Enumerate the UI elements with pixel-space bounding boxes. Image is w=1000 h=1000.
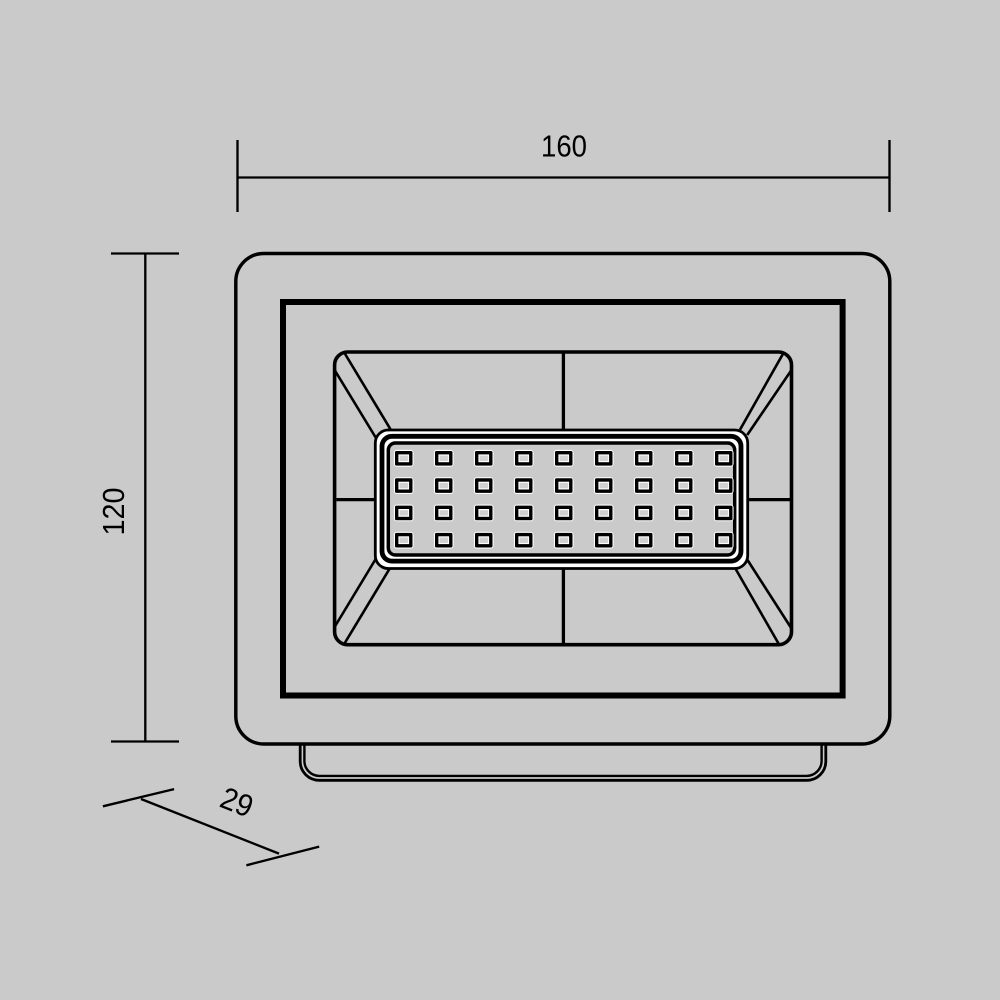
svg-text:160: 160 [541, 129, 587, 164]
svg-text:120: 120 [96, 488, 131, 536]
